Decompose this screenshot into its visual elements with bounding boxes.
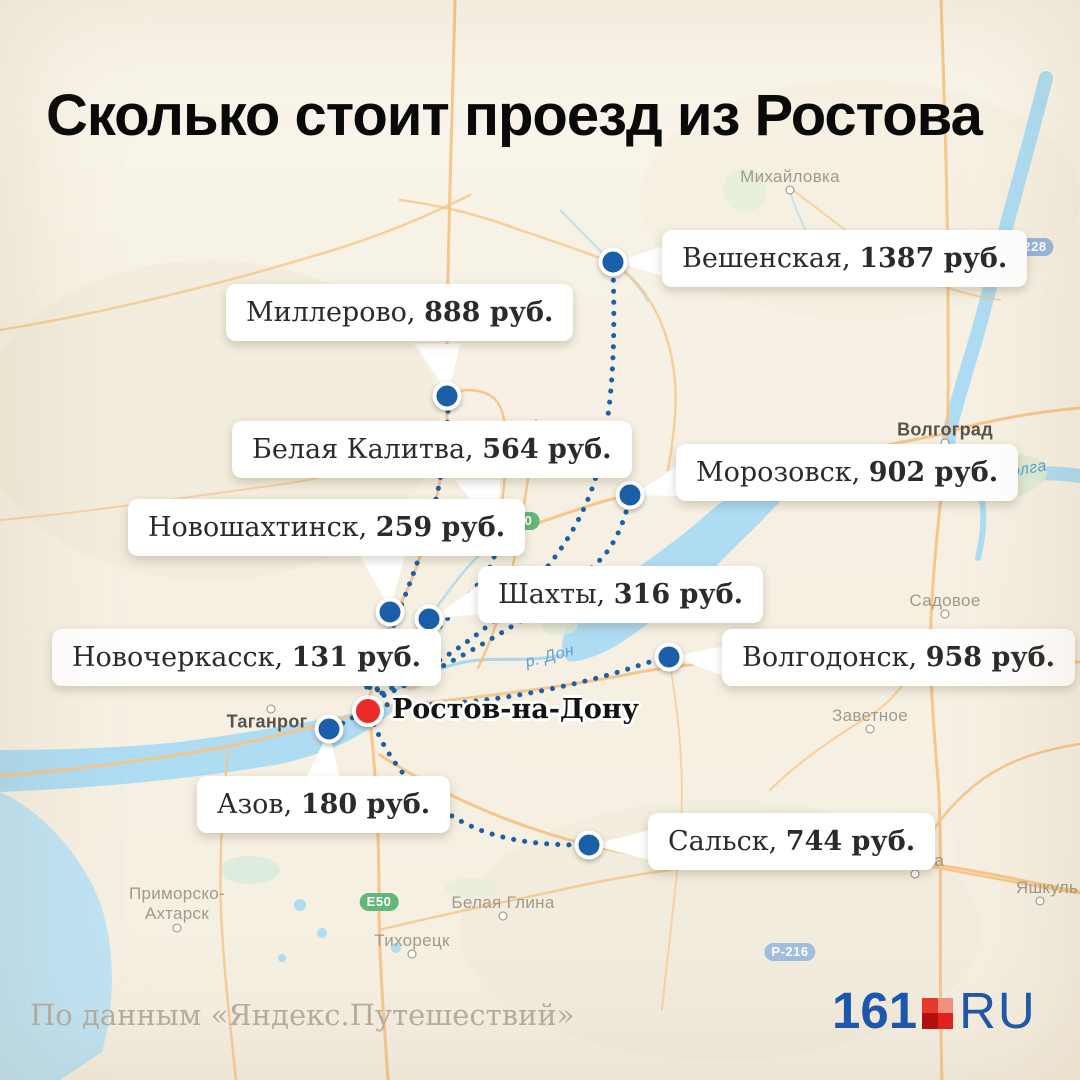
town-circle-taganrog: [267, 705, 276, 714]
callout-price: 180 руб.: [301, 789, 430, 820]
town-circle-primorsko: [173, 924, 182, 933]
logo-number: 161: [832, 985, 917, 1036]
callout-millerovo: Миллерово, 888 руб.: [226, 284, 573, 341]
city-dot-volgodonsk: [655, 643, 684, 672]
city-dot-millerovo: [433, 382, 462, 411]
infographic-canvas: Михайловка Волгоград р. Волга Садовое За…: [0, 0, 1080, 1080]
logo-red-square-icon: [922, 998, 953, 1029]
map-label-primorsko-line1: Приморско-: [129, 884, 225, 904]
town-circle-tikhoretsk: [408, 950, 417, 959]
town-circle-yashkul: [1036, 897, 1045, 906]
callout-city-name: Морозовск,: [696, 457, 860, 488]
callout-city-name: Волгодонск,: [742, 642, 917, 673]
callout-price: 744 руб.: [786, 826, 915, 857]
callout-price: 888 руб.: [424, 297, 553, 328]
callout-city-name: Новошахтинск,: [148, 512, 367, 543]
map-label-primorsko-line2: Ахтарск: [145, 904, 209, 924]
callout-city-name: Новочеркасск,: [72, 642, 283, 673]
161ru-logo: 161 RU: [832, 984, 1037, 1036]
logo-suffix: RU: [959, 985, 1037, 1036]
callout-price: 316 руб.: [614, 579, 743, 610]
city-dot-salsk: [575, 831, 604, 860]
origin-dot-rostov: [352, 695, 384, 727]
callout-city-name: Азов,: [217, 789, 292, 820]
city-dot-novoshakhtinsk: [376, 598, 405, 627]
city-dot-morozovsk: [616, 481, 645, 510]
callout-volgodonsk: Волгодонск, 958 руб.: [722, 629, 1075, 686]
callout-city-name: Шахты,: [498, 579, 605, 610]
callout-salsk: Сальск, 744 руб.: [648, 813, 935, 870]
map-label-zavetnoye: Заветное: [832, 706, 908, 726]
town-circle-sadovoye: [941, 610, 950, 619]
callout-shakhty: Шахты, 316 руб.: [478, 566, 763, 623]
city-dot-veshenskaya: [599, 248, 628, 277]
town-circle-belaya-glina: [499, 912, 508, 921]
callout-morozovsk: Морозовск, 902 руб.: [676, 444, 1018, 501]
map-label-volgograd: Волгоград: [897, 420, 993, 441]
callout-city-name: Вешенская,: [682, 243, 851, 274]
callout-city-name: Сальск,: [668, 826, 777, 857]
town-circle-elista: [911, 870, 920, 879]
city-dot-azov: [315, 715, 344, 744]
page-title: Сколько стоит проезд из Ростова: [46, 82, 982, 149]
callout-city-name: Белая Калитва,: [252, 434, 474, 465]
road-badge-e50: Е50: [360, 893, 399, 911]
callout-novoshakhtinsk: Новошахтинск, 259 руб.: [128, 499, 525, 556]
town-circle-zavetnoye: [866, 725, 875, 734]
map-label-mikhaylovka: Михайловка: [740, 167, 840, 187]
map-label-tikhoretsk: Тихорецк: [374, 931, 449, 951]
callout-veshenskaya: Вешенская, 1387 руб.: [662, 230, 1027, 287]
map-label-taganrog: Таганрог: [227, 712, 308, 733]
callout-price: 902 руб.: [869, 457, 998, 488]
town-circle-mikhaylovka: [786, 186, 795, 195]
callout-novocherkassk: Новочеркасск, 131 руб.: [52, 629, 441, 686]
callout-city-name: Миллерово,: [246, 297, 416, 328]
origin-label: Ростов-на-Дону: [392, 694, 639, 725]
callout-price: 1387 руб.: [859, 243, 1007, 274]
map-label-yashkul: Яшкуль: [1016, 878, 1078, 898]
callout-price: 958 руб.: [926, 642, 1055, 673]
callout-belaya-kalitva: Белая Калитва, 564 руб.: [232, 421, 632, 478]
road-badge-r216: Р-216: [764, 943, 815, 961]
data-source-attribution: По данным «Яндекс.Путешествий»: [30, 998, 574, 1032]
callout-price: 259 руб.: [376, 512, 505, 543]
map-label-belaya-glina: Белая Глина: [451, 893, 554, 913]
callout-price: 131 руб.: [292, 642, 421, 673]
callout-azov: Азов, 180 руб.: [197, 776, 450, 833]
callout-price: 564 руб.: [482, 434, 611, 465]
map-label-sadovoye: Садовое: [909, 591, 980, 611]
